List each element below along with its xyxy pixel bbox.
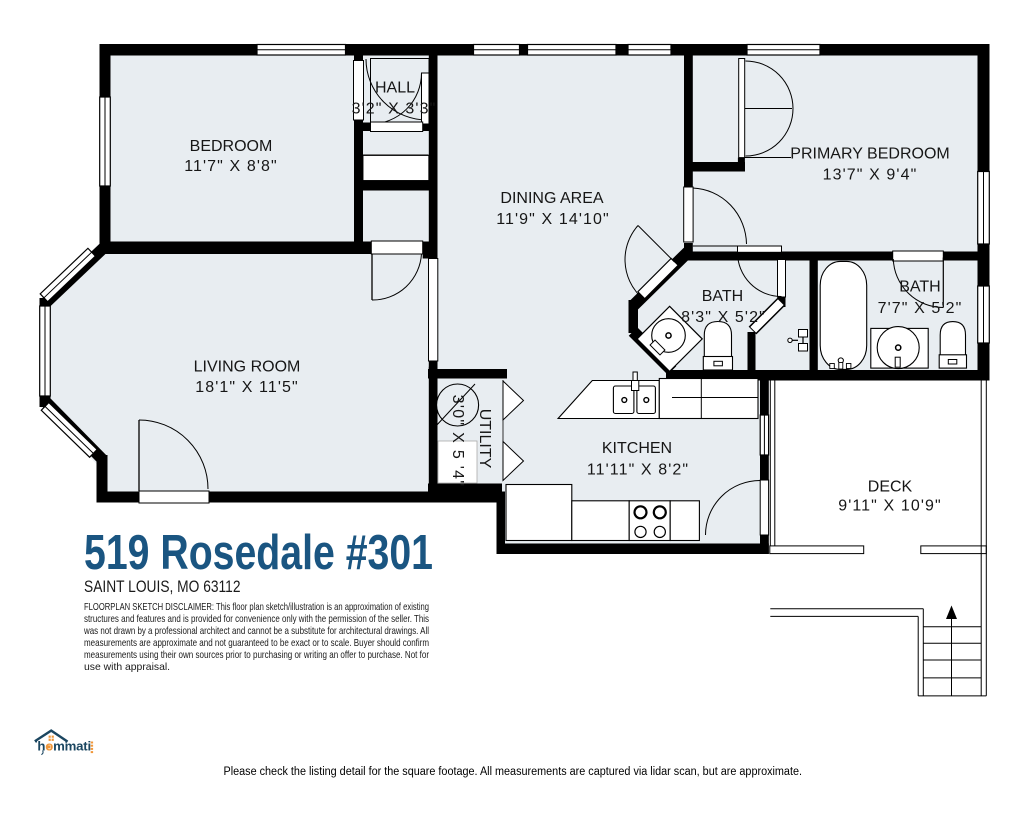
svg-text:LIVING ROOM: LIVING ROOM xyxy=(194,359,301,376)
svg-text:structures and features and is: structures and features and is provided … xyxy=(84,614,429,625)
svg-text:11'7" X 8'8": 11'7" X 8'8" xyxy=(184,158,278,175)
svg-text:use with appraisal.: use with appraisal. xyxy=(84,662,170,673)
svg-text:was not drawn by a professiona: was not drawn by a professional architec… xyxy=(83,626,429,637)
svg-text:hommati: hommati xyxy=(37,738,91,753)
svg-text:DECK: DECK xyxy=(868,479,913,496)
svg-text:519 Rosedale #301: 519 Rosedale #301 xyxy=(84,526,433,580)
svg-text:HALL: HALL xyxy=(375,80,415,97)
svg-text:8'3" X 5'2": 8'3" X 5'2" xyxy=(681,309,766,326)
svg-text:DINING AREA: DINING AREA xyxy=(500,190,603,207)
svg-text:BEDROOM: BEDROOM xyxy=(190,138,273,155)
svg-text:Please check the listing detai: Please check the listing detail for the … xyxy=(224,766,803,778)
svg-text:3'2" X 3'3": 3'2" X 3'3" xyxy=(352,101,437,118)
svg-text:3'0" X 5 '4": 3'0" X 5 '4" xyxy=(449,395,466,488)
svg-text:measurements are approximate a: measurements are approximate and not gua… xyxy=(84,638,429,649)
svg-text:18'1" X 11'5": 18'1" X 11'5" xyxy=(195,379,299,396)
svg-text:SAINT LOUIS, MO 63112: SAINT LOUIS, MO 63112 xyxy=(84,578,241,596)
svg-text:FLOORPLAN SKETCH DISCLAIMER: T: FLOORPLAN SKETCH DISCLAIMER: This floor … xyxy=(84,602,429,613)
svg-text:13'7" X 9'4": 13'7" X 9'4" xyxy=(823,167,918,184)
svg-text:11'11" X 8'2": 11'11" X 8'2" xyxy=(587,462,689,479)
svg-text:9'11" X 10'9": 9'11" X 10'9" xyxy=(838,498,942,515)
svg-text:measurements using their own s: measurements using their own sources pri… xyxy=(84,650,429,661)
svg-text:BATH: BATH xyxy=(702,288,743,305)
svg-text:KITCHEN: KITCHEN xyxy=(602,440,672,457)
svg-text:UTILITY: UTILITY xyxy=(476,409,493,469)
svg-text:PRIMARY BEDROOM: PRIMARY BEDROOM xyxy=(790,146,949,163)
svg-text:7'7" X 5'2": 7'7" X 5'2" xyxy=(878,300,963,317)
svg-text:BATH: BATH xyxy=(899,279,940,296)
svg-text:11'9" X 14'10": 11'9" X 14'10" xyxy=(496,211,610,228)
